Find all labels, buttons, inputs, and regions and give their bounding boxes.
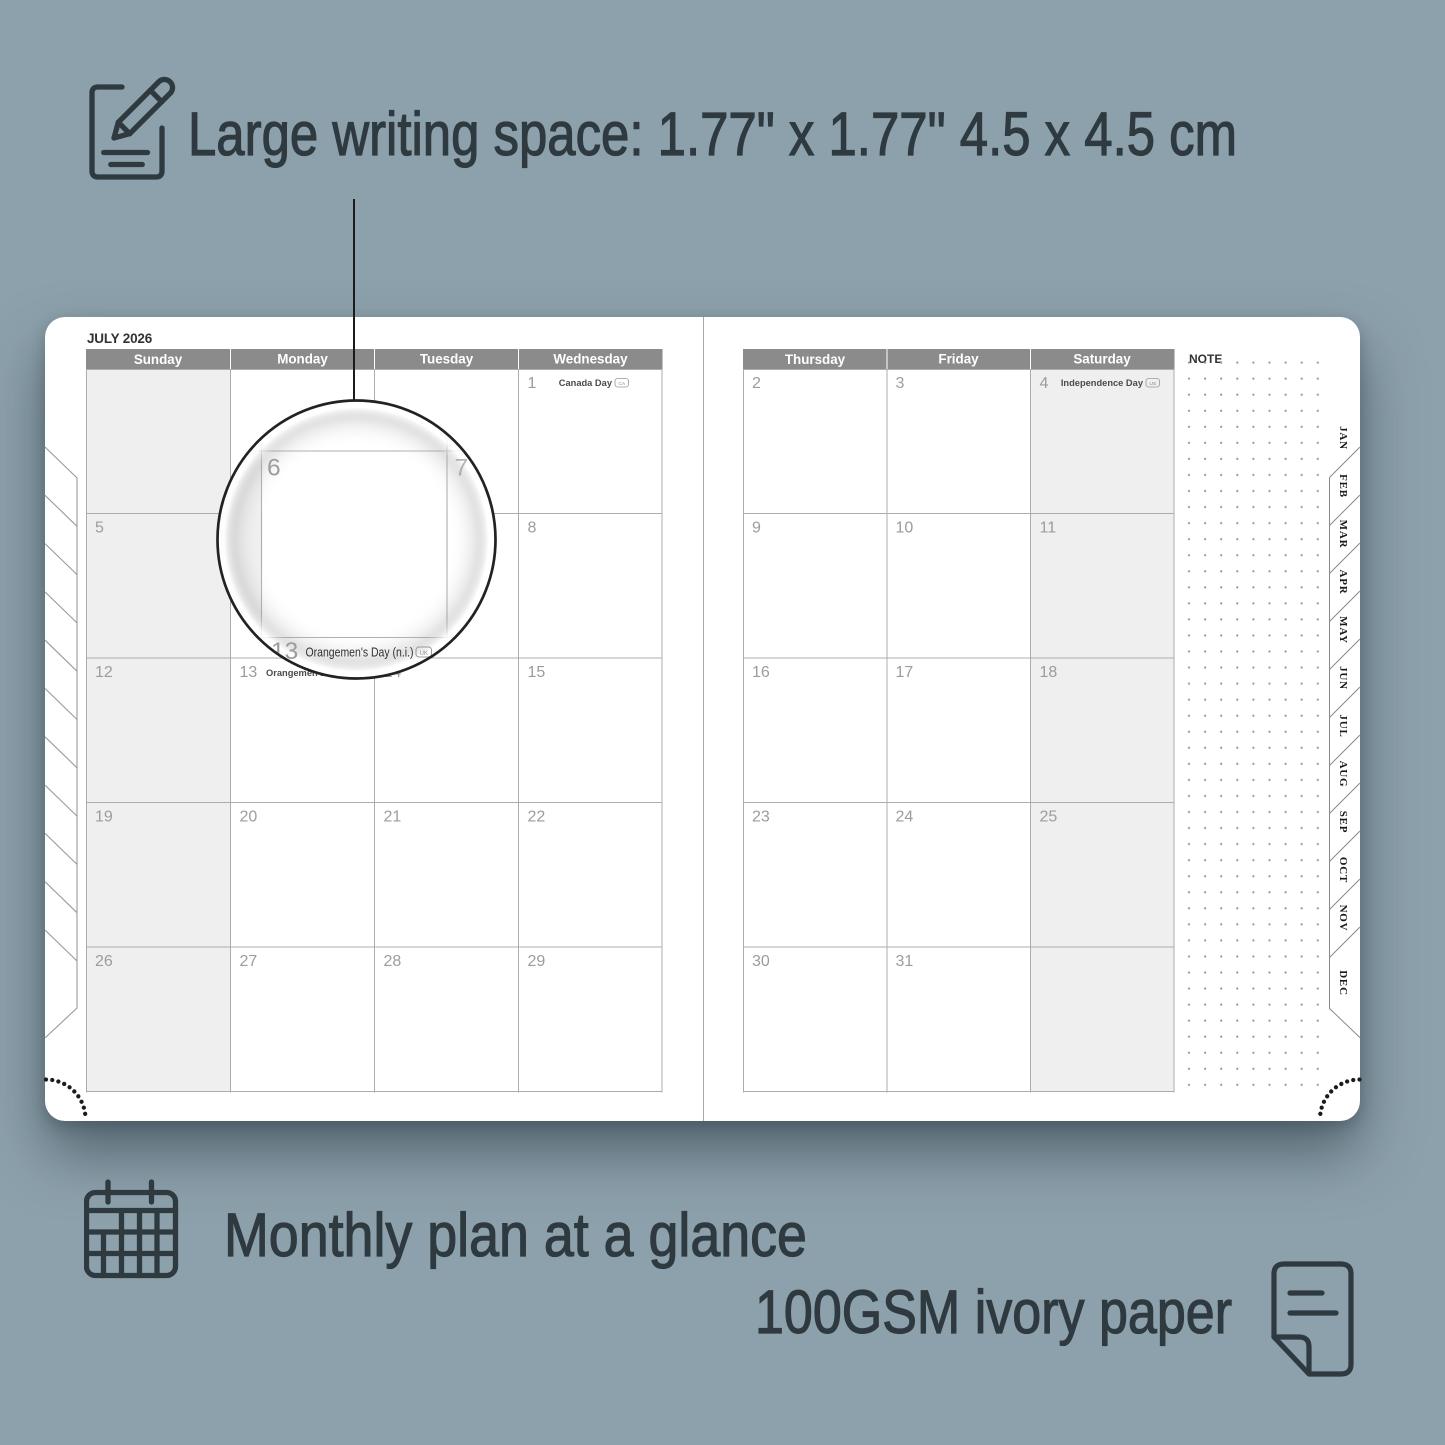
svg-text:Thursday: Thursday [785, 352, 846, 367]
svg-text:CA: CA [618, 381, 625, 387]
svg-text:8: 8 [528, 520, 537, 537]
svg-text:17: 17 [896, 664, 914, 681]
svg-text:Sunday: Sunday [134, 352, 183, 367]
svg-text:11: 11 [1040, 520, 1057, 537]
svg-text:6: 6 [267, 455, 281, 482]
svg-text:Orangemen's Day (n.i.): Orangemen's Day (n.i.) [306, 646, 414, 660]
svg-text:24: 24 [896, 809, 914, 826]
svg-text:15: 15 [528, 664, 546, 681]
svg-text:12: 12 [95, 664, 113, 681]
svg-text:10: 10 [896, 520, 914, 537]
svg-text:Monday: Monday [277, 352, 328, 367]
svg-text:9: 9 [752, 520, 761, 537]
svg-text:US: US [1149, 381, 1156, 387]
svg-text:16: 16 [752, 664, 770, 681]
svg-text:NOV: NOV [1337, 905, 1349, 932]
svg-text:25: 25 [1040, 809, 1058, 826]
svg-text:20: 20 [240, 809, 258, 826]
svg-text:27: 27 [240, 953, 258, 970]
svg-text:30: 30 [752, 953, 770, 970]
svg-text:7: 7 [455, 455, 469, 482]
svg-text:28: 28 [384, 953, 402, 970]
svg-text:Saturday: Saturday [1073, 352, 1131, 367]
svg-text:JUN: JUN [1337, 666, 1349, 690]
svg-text:4: 4 [1040, 375, 1049, 392]
svg-text:UK: UK [420, 651, 428, 657]
svg-text:5: 5 [95, 520, 104, 537]
svg-text:Wednesday: Wednesday [553, 352, 628, 367]
svg-text:APR: APR [1337, 569, 1349, 594]
svg-text:29: 29 [528, 953, 546, 970]
svg-text:JUL: JUL [1337, 714, 1349, 737]
svg-text:26: 26 [95, 953, 113, 970]
svg-text:MAR: MAR [1337, 520, 1349, 549]
svg-text:DEC: DEC [1337, 970, 1349, 996]
svg-text:MAY: MAY [1337, 616, 1349, 644]
svg-text:Friday: Friday [938, 352, 979, 367]
svg-text:21: 21 [384, 809, 402, 826]
svg-text:18: 18 [1040, 664, 1058, 681]
svg-text:23: 23 [752, 809, 770, 826]
svg-text:SEP: SEP [1337, 811, 1349, 834]
svg-text:22: 22 [528, 809, 546, 826]
svg-text:Tuesday: Tuesday [420, 352, 474, 367]
svg-text:Independence Day: Independence Day [1061, 378, 1144, 388]
svg-text:2: 2 [752, 375, 761, 392]
svg-text:AUG: AUG [1337, 761, 1349, 788]
svg-text:Canada Day: Canada Day [559, 378, 613, 388]
svg-text:FEB: FEB [1337, 474, 1349, 498]
svg-text:OCT: OCT [1337, 857, 1349, 883]
svg-text:31: 31 [896, 953, 914, 970]
svg-text:1: 1 [528, 375, 537, 392]
svg-text:3: 3 [896, 375, 905, 392]
svg-text:19: 19 [95, 809, 113, 826]
svg-text:JAN: JAN [1337, 426, 1349, 450]
